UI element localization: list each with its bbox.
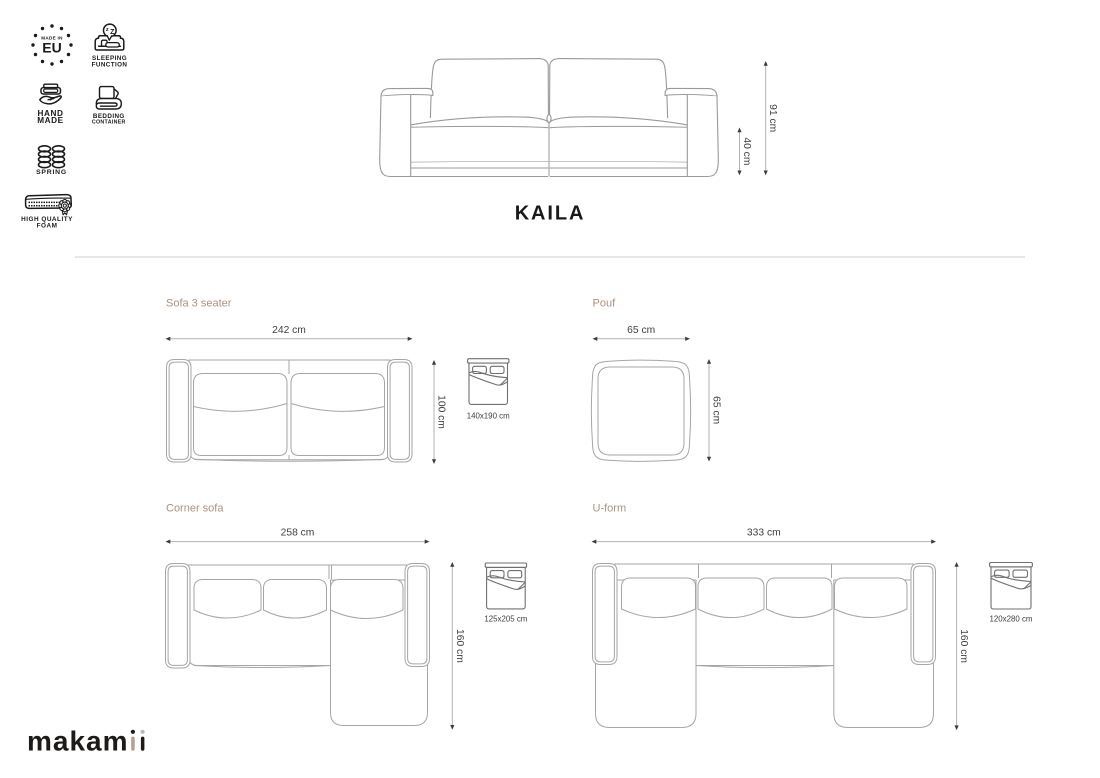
svg-text:U-form: U-form: [593, 503, 627, 515]
svg-text:makam: makam: [27, 726, 129, 757]
svg-text:160 cm: 160 cm: [454, 629, 465, 663]
svg-text:160 cm: 160 cm: [958, 629, 969, 663]
svg-text:333 cm: 333 cm: [747, 528, 781, 539]
svg-text:100 cm: 100 cm: [436, 395, 447, 429]
svg-text:140x190 cm: 140x190 cm: [467, 412, 510, 421]
svg-text:SPRING: SPRING: [36, 169, 67, 176]
svg-text:FOAM: FOAM: [37, 223, 58, 230]
svg-text:Pouf: Pouf: [593, 298, 617, 310]
svg-text:KAILA: KAILA: [515, 203, 586, 225]
svg-text:CONTAINER: CONTAINER: [92, 120, 126, 126]
svg-text:EU: EU: [42, 39, 61, 55]
svg-text:Corner sofa: Corner sofa: [166, 503, 224, 515]
svg-text:91 cm: 91 cm: [767, 104, 778, 132]
svg-text:65 cm: 65 cm: [711, 396, 722, 424]
svg-text:120x280 cm: 120x280 cm: [990, 615, 1033, 624]
svg-text:242 cm: 242 cm: [272, 325, 306, 336]
svg-text:z: z: [106, 27, 109, 33]
svg-text:40 cm: 40 cm: [741, 137, 752, 165]
svg-text:65 cm: 65 cm: [627, 325, 655, 336]
svg-text:MADE: MADE: [37, 116, 64, 125]
svg-text:Sofa 3 seater: Sofa 3 seater: [166, 298, 232, 310]
svg-text:258 cm: 258 cm: [281, 528, 315, 539]
svg-text:125x205 cm: 125x205 cm: [484, 615, 527, 624]
svg-text:FUNCTION: FUNCTION: [92, 61, 128, 68]
svg-text:Z: Z: [110, 29, 115, 36]
